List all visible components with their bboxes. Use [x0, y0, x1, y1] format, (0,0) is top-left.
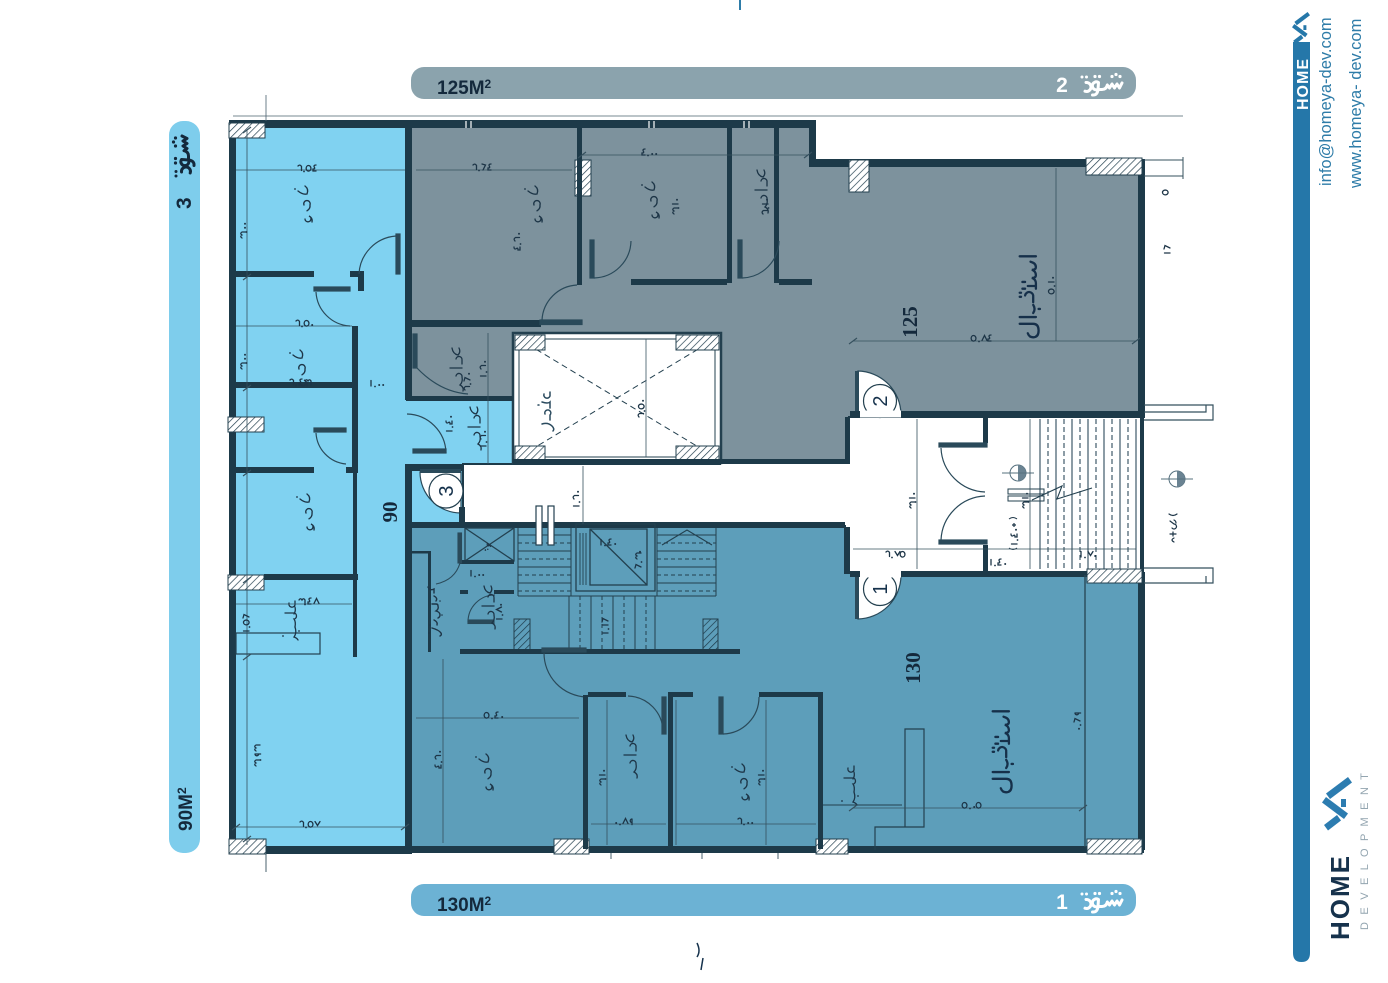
svg-text:130: 130: [901, 652, 925, 684]
svg-text:www.homeya- dev.com: www.homeya- dev.com: [1347, 19, 1365, 189]
svg-text:HOME: HOME: [1295, 58, 1312, 110]
svg-text:125: 125: [898, 306, 922, 338]
svg-text:1: 1: [1056, 891, 1068, 914]
svg-text:info@homeya-dev.com: info@homeya-dev.com: [1317, 17, 1335, 186]
svg-text:HOME: HOME: [1325, 854, 1355, 940]
svg-text:125M2: 125M2: [437, 77, 492, 99]
svg-text:D E V E L O P M E N T: D E V E L O P M E N T: [1359, 771, 1371, 930]
svg-text:2: 2: [1056, 74, 1068, 97]
svg-text:90: 90: [378, 502, 402, 523]
svg-text:130M2: 130M2: [437, 894, 492, 916]
svg-text:2: 2: [870, 395, 892, 406]
svg-text:3: 3: [173, 197, 196, 209]
svg-text:3: 3: [436, 485, 458, 496]
svg-text:1: 1: [870, 583, 892, 594]
